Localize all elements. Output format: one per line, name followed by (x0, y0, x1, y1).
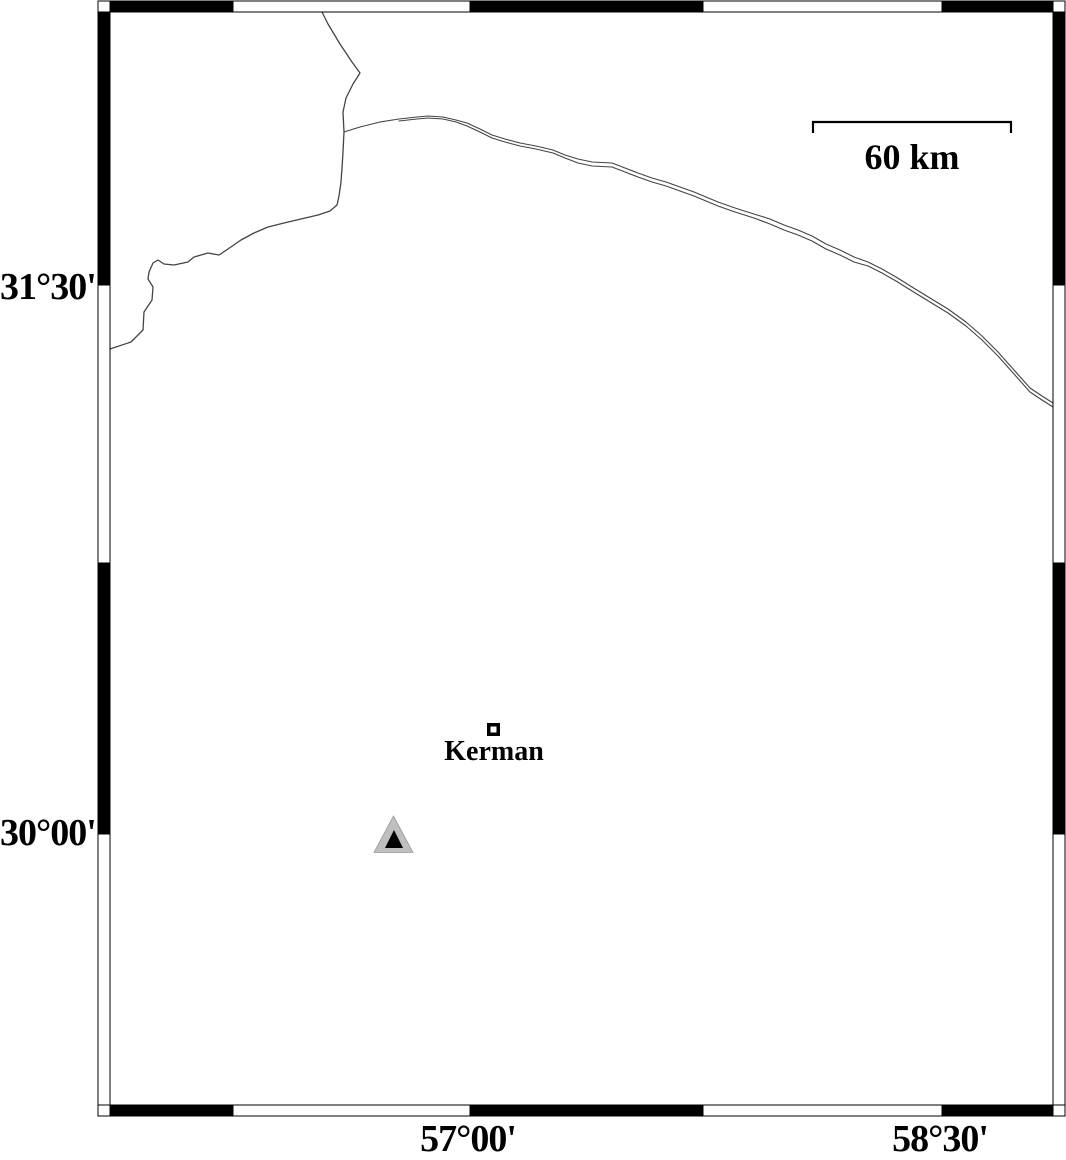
lon-label-57-00: 57°00' (420, 1120, 516, 1158)
frame-segment-top (110, 1, 233, 12)
frame-segment-bottom (942, 1105, 1053, 1116)
city-square-icon (489, 725, 499, 735)
lat-label-30-00: 30°00' (0, 814, 88, 852)
frame-corner (98, 1, 110, 12)
scale-bar (813, 122, 1011, 133)
frame-corner (1053, 1105, 1065, 1116)
frame-segment-top (942, 1, 1053, 12)
frame-corner (1053, 1, 1065, 12)
roads-group (110, 12, 1053, 407)
frame-segment-bottom (703, 1105, 942, 1116)
frame-segment-left (98, 834, 110, 1105)
lat-label-31-30: 31°30' (0, 268, 88, 306)
frame-segment-left (98, 563, 110, 834)
scale-bar-bracket (813, 122, 1011, 133)
frame-segment-left (98, 285, 110, 563)
frame-segment-top (233, 1, 470, 12)
frame-corner (98, 1105, 110, 1116)
station-triangle-marker (374, 816, 413, 853)
map-figure: 31°30' 30°00' 57°00' 58°30' 60 km Kerman (0, 0, 1066, 1154)
frame-segment-bottom (233, 1105, 470, 1116)
frame-segment-top (470, 1, 703, 12)
lon-label-58-30: 58°30' (892, 1120, 988, 1158)
city-label: Kerman (444, 738, 544, 766)
frame-segment-right (1053, 563, 1065, 834)
city-marker (489, 725, 499, 735)
frame-segment-right (1053, 12, 1065, 285)
frame-segment-right (1053, 834, 1065, 1105)
north-road (110, 12, 360, 349)
frame-segment-top (703, 1, 942, 12)
frame-segment-left (98, 12, 110, 285)
scale-bar-label: 60 km (864, 139, 959, 175)
frame-segment-bottom (470, 1105, 703, 1116)
frame-segment-bottom (110, 1105, 233, 1116)
frame-segment-right (1053, 285, 1065, 563)
